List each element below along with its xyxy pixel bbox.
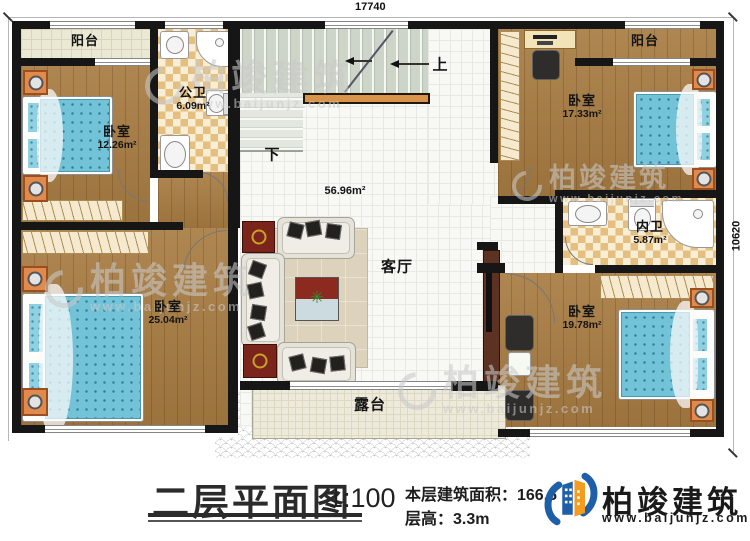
dim-line-left [8, 17, 9, 441]
nightstand [690, 399, 714, 422]
window-bath-top [165, 21, 223, 29]
window-stairs-top [325, 21, 408, 29]
corridor-floor [490, 196, 563, 273]
hall-area-label: 56.96m² [325, 181, 366, 199]
company-logo-icon [543, 470, 599, 528]
wall-bath-left [150, 21, 158, 178]
company-website: www.baijunjz.com [602, 511, 750, 525]
plant-icon: ✳ [310, 288, 324, 308]
window-balcony-right [625, 21, 700, 29]
staircase-upper-flight [240, 29, 428, 94]
wall-neiwei-left [555, 190, 563, 273]
dim-height-label: 10620 [730, 221, 742, 252]
nightstand [22, 266, 48, 292]
office-chair [532, 50, 560, 80]
sink [568, 201, 607, 226]
wall-neiwei-bottom [595, 265, 716, 273]
stair-direction-arrow [390, 60, 399, 68]
upper-hall-floor [428, 29, 498, 204]
wall-corridor-bottom [477, 263, 505, 273]
room-label-bedroom-top-left: 卧室12.26m² [97, 125, 136, 151]
wall-bedroomTR-left [490, 21, 498, 163]
title-underline-thin [148, 520, 362, 522]
terrace-slider [290, 381, 451, 390]
nightstand [22, 388, 48, 416]
closet [22, 231, 149, 254]
wall-bath-right [228, 21, 240, 172]
tv [486, 272, 492, 332]
floor-area-text: 本层建筑面积：166.6 [405, 481, 557, 505]
room-label-bedroom-top-right: 卧室17.33m² [562, 94, 601, 120]
stairs-down-label: 下 [264, 148, 279, 165]
side-table [243, 344, 277, 378]
wall-tv-bottom [451, 381, 498, 391]
wall-neiwei-top [563, 190, 716, 198]
sofa-pillow [329, 355, 345, 371]
staircase-lower-flight [240, 93, 303, 152]
wall-bath-bottom [158, 170, 203, 178]
room-label-bedroom-bottom-left: 卧室25.04m² [148, 300, 187, 326]
floor-height-text: 层高：3.3m [405, 505, 489, 529]
stairs-up-label: 上 [432, 58, 447, 75]
wall-bedroom2-top [12, 222, 183, 230]
balcony-left-door [95, 58, 150, 66]
nightstand [690, 288, 714, 308]
outer-wall-right [716, 21, 724, 437]
sofa-pillow [247, 282, 265, 300]
side-table [242, 221, 275, 253]
room-label-bedroom-bottom-right: 卧室19.78m² [562, 305, 601, 331]
dim-line-top [8, 17, 734, 18]
window-balcony-left [50, 21, 135, 29]
desk [524, 30, 576, 49]
tea-table [508, 352, 531, 376]
window-bottom-left [45, 425, 205, 433]
wall-tv-top [477, 242, 498, 250]
coffee-table: ✳ [295, 277, 339, 321]
nightstand [23, 175, 48, 202]
nightstand [692, 168, 715, 190]
bed [618, 309, 715, 400]
wardrobe [500, 31, 520, 161]
stair-direction-line [354, 60, 372, 62]
balcony-right-slider [613, 58, 690, 66]
bed [633, 91, 717, 168]
wall-bedroom2-right [228, 222, 238, 433]
plan-title: 二层平面图 [152, 472, 352, 526]
room-label-balcony-right: 阳台 [631, 32, 659, 50]
dim-width-label: 17740 [355, 1, 386, 13]
room-label-living: 客厅 [381, 260, 413, 277]
floor-plan-canvas: 17740 10620 [0, 0, 750, 541]
wall-bedroomTR-south [498, 196, 563, 204]
sink [160, 135, 190, 173]
closet [22, 200, 123, 221]
room-label-terrace: 露台 [354, 398, 386, 415]
nightstand [692, 69, 715, 90]
sofa-pillow [250, 304, 267, 321]
stair-handrail [303, 93, 430, 104]
plan-scale: 1:100 [328, 483, 396, 514]
window-bottom-right [530, 429, 690, 437]
room-label-bath-public: 公卫6.09m² [176, 86, 209, 112]
washing-machine [160, 31, 189, 59]
wall-stair-side [228, 172, 240, 228]
stair-direction-arrow [345, 57, 354, 65]
nightstand [23, 70, 48, 95]
sofa-pillow [310, 357, 327, 374]
sofa-pillow [325, 223, 342, 240]
room-label-balcony-left: 阳台 [71, 32, 99, 50]
wall-terrace-left-seg [240, 381, 290, 390]
stair-direction-line [399, 63, 429, 65]
armchair [505, 390, 534, 421]
room-label-bath-private: 内卫5.87m² [633, 220, 666, 246]
sofa-pillow [305, 220, 322, 237]
